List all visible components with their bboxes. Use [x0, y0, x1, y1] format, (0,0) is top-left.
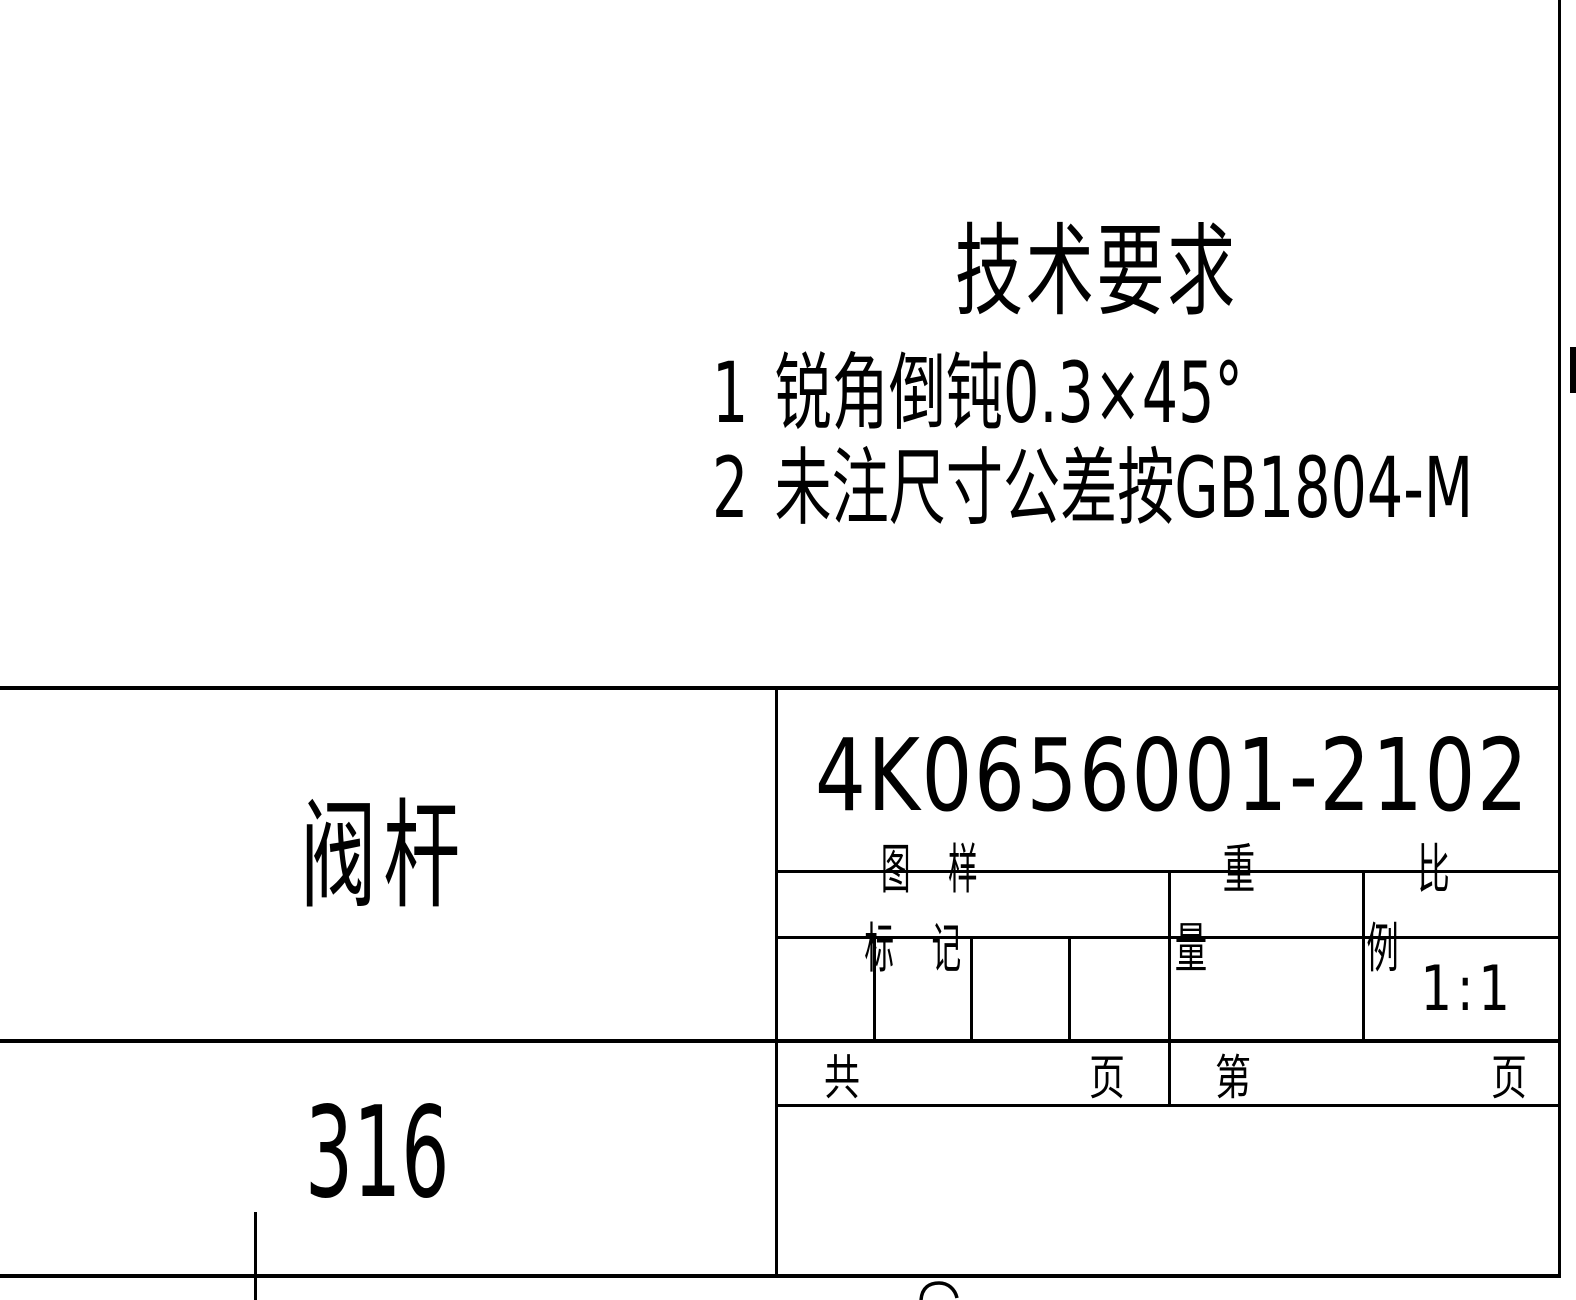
page-number-cell: 第 页 [1169, 1040, 1560, 1105]
page-number-prefix: 第 [1215, 1038, 1251, 1108]
requirement-number: 2 [712, 446, 750, 530]
material-value: 316 [305, 1090, 449, 1216]
tech-requirement-item: 1锐角倒钝0.3×45° [712, 351, 1243, 435]
weight-header-label: 重量 [1175, 825, 1357, 983]
clipped-edge-mark [1570, 347, 1576, 393]
mark-header-cell: 图样标记 [776, 871, 1169, 937]
total-pages-cell: 共 页 [776, 1040, 1169, 1105]
page-number-suffix: 页 [1491, 1038, 1527, 1108]
title-block-bottom-line [0, 1274, 1561, 1278]
scale-value: 1:1 [1421, 952, 1515, 1025]
clipped-circle-arc [912, 1280, 966, 1300]
engineering-drawing-sheet: 技术要求 1锐角倒钝0.3×45° 2未注尺寸公差按GB1804-M 阀杆 31… [0, 0, 1576, 1300]
scale-value-cell: 1:1 [1363, 937, 1560, 1040]
tech-requirements-title: 技术要求 [955, 222, 1238, 322]
title-block-top-line [0, 686, 1561, 690]
dimension-tick-line [254, 1212, 257, 1300]
total-pages-suffix: 页 [1089, 1038, 1125, 1108]
title-block-main-divider [775, 686, 778, 1278]
mark-header-label: 图样标记 [864, 825, 1080, 983]
weight-header-cell: 重量 [1169, 871, 1363, 937]
requirement-text: 未注尺寸公差按GB1804-M [775, 439, 1474, 537]
requirement-number: 1 [712, 351, 750, 435]
scale-header-cell: 比例 [1363, 871, 1560, 937]
total-pages-prefix: 共 [824, 1038, 860, 1108]
drawing-number: 4K0656001-2102 [815, 726, 1530, 826]
part-name: 阀杆 [300, 797, 466, 915]
tech-requirement-item: 2未注尺寸公差按GB1804-M [712, 446, 1473, 530]
requirement-text: 锐角倒钝0.3×45° [775, 344, 1243, 442]
